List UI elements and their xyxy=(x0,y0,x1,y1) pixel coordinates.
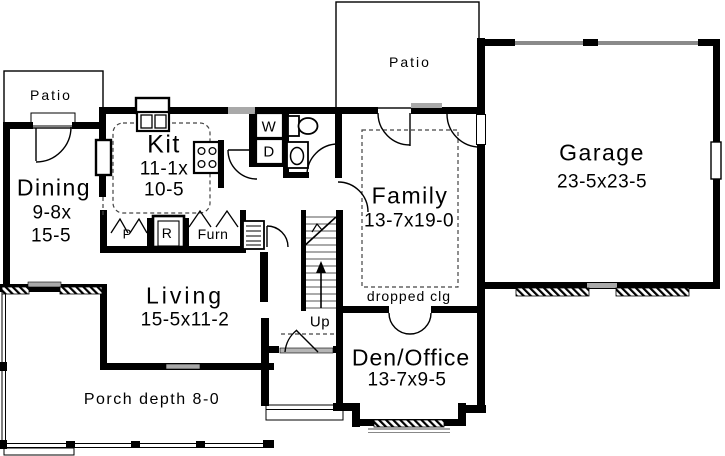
bath-sink xyxy=(287,142,308,168)
den-office-dim: 13-7x9-5 xyxy=(368,371,447,390)
garage-door-sills xyxy=(516,288,689,296)
kitchen-sink xyxy=(137,112,169,131)
kitchen-dim2: 10-5 xyxy=(144,181,184,200)
living-dim: 15-5x11-2 xyxy=(141,311,230,330)
refrigerator-closet-label: R xyxy=(162,226,173,240)
family-label: Family xyxy=(372,185,449,208)
stair-break-line xyxy=(302,217,336,248)
kitchen-label: Kit xyxy=(147,133,181,158)
entry-stoop xyxy=(266,405,343,420)
dining-dim2: 15-5 xyxy=(31,227,71,246)
stairs-up-label: Up xyxy=(310,315,330,330)
garage-entry-door xyxy=(447,114,480,147)
dining-label: Dining xyxy=(17,177,91,200)
porch-outline xyxy=(2,292,274,455)
patio-top-label: Patio xyxy=(389,55,431,69)
family-hall-door xyxy=(338,182,368,212)
bath-door xyxy=(307,144,338,175)
bath-fixtures xyxy=(287,116,318,168)
toilet xyxy=(288,116,318,136)
kitchen-dim1: 11-1x xyxy=(140,160,189,179)
floor-plan: Patio Patio Dining 9-8x 15-5 Kit 11-1x 1… xyxy=(0,0,725,456)
den-office-label: Den/Office xyxy=(352,347,470,370)
kitchen-window-box xyxy=(136,98,169,113)
living-label: Living xyxy=(146,285,224,308)
dining-dim1: 9-8x xyxy=(33,204,72,223)
porch-label: Porch depth 8-0 xyxy=(84,392,220,408)
washer-label: W xyxy=(262,120,277,135)
stove xyxy=(194,142,219,173)
refrigerator xyxy=(96,140,111,175)
dropped-ceiling-label: dropped clg xyxy=(367,289,451,303)
furnace-unit xyxy=(243,221,264,249)
family-french-doors xyxy=(389,313,431,334)
stairs xyxy=(302,217,336,308)
dining-patio-door xyxy=(36,127,71,162)
furnace-bifold-doors xyxy=(189,211,238,227)
garage-dim: 23-5x23-5 xyxy=(557,173,647,192)
garage-label: Garage xyxy=(559,142,645,165)
patio-left-label: Patio xyxy=(30,88,72,102)
furnace-label: Furn xyxy=(198,227,229,241)
floor-plan-drawing xyxy=(0,0,725,456)
dropped-ceiling-dashed xyxy=(362,130,458,287)
pantry-label: P xyxy=(123,228,132,241)
hall-closet-door xyxy=(267,226,288,247)
family-dim: 13-7x19-0 xyxy=(364,212,454,231)
dryer-label: D xyxy=(263,145,274,160)
up-arrow-head xyxy=(316,261,326,273)
